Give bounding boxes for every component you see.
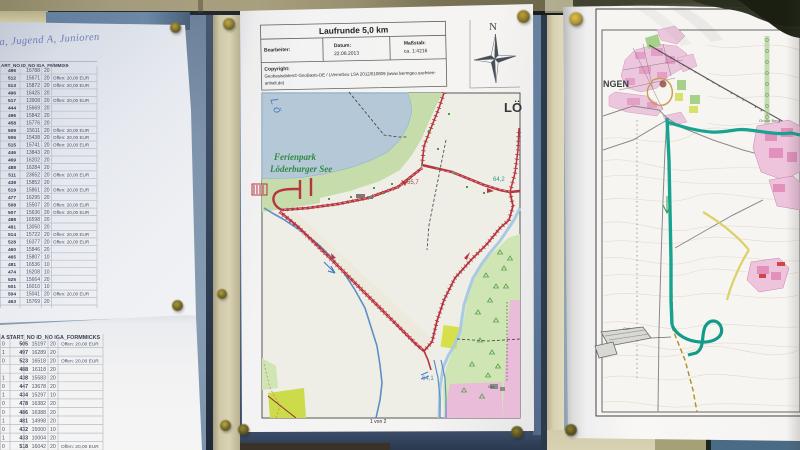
- svg-text:15664: 15664: [26, 277, 40, 283]
- svg-text:20: 20: [44, 68, 50, 74]
- svg-text:Offen: 20,00 EUR: Offen: 20,00 EUR: [61, 341, 99, 347]
- svg-text:528: 528: [8, 240, 16, 246]
- svg-text:Gut: Gut: [623, 326, 630, 331]
- svg-text:496: 496: [8, 113, 16, 119]
- svg-text:16202: 16202: [26, 158, 40, 164]
- svg-text:Offen: 20,00 EUR: Offen: 20,00 EUR: [53, 232, 90, 237]
- svg-text:20: 20: [50, 376, 56, 382]
- svg-text:20: 20: [50, 410, 56, 416]
- svg-text:ca. 1:4216: ca. 1:4216: [404, 48, 428, 54]
- svg-text:20: 20: [50, 367, 56, 373]
- svg-text:512: 512: [8, 76, 16, 82]
- svg-text:438: 438: [8, 180, 16, 186]
- svg-text:20: 20: [50, 401, 56, 407]
- svg-text:13908: 13908: [26, 98, 40, 104]
- svg-text:481: 481: [8, 262, 16, 268]
- svg-text:16518: 16518: [32, 359, 47, 365]
- svg-text:20: 20: [50, 435, 56, 441]
- svg-text:465: 465: [8, 254, 16, 260]
- svg-text:507: 507: [8, 210, 16, 216]
- svg-text:10: 10: [44, 262, 50, 268]
- svg-text:20: 20: [50, 418, 56, 424]
- svg-text:501: 501: [8, 284, 16, 290]
- svg-text:15722: 15722: [26, 232, 40, 238]
- svg-text:15041: 15041: [26, 292, 40, 298]
- svg-text:0: 0: [2, 401, 5, 407]
- svg-text:Offen: 20,00 EUR: Offen: 20,00 EUR: [53, 76, 90, 81]
- svg-text:508: 508: [8, 202, 16, 208]
- svg-text:504: 504: [8, 292, 16, 298]
- svg-text:Offen: 20,00 EUR: Offen: 20,00 EUR: [61, 444, 99, 450]
- svg-text:15872: 15872: [26, 83, 40, 89]
- svg-text:15507: 15507: [26, 202, 40, 208]
- svg-text:509: 509: [8, 128, 16, 134]
- svg-text:Offen: 20,00 EUR: Offen: 20,00 EUR: [53, 128, 90, 133]
- svg-text:0: 0: [2, 384, 5, 390]
- svg-text:Datum:: Datum:: [334, 43, 352, 49]
- svg-text:0: 0: [2, 444, 5, 450]
- svg-text:A START_NO ID_NO IGA_FORMMICKS: A START_NO ID_NO IGA_FORMMICKS: [1, 335, 101, 341]
- svg-text:16536: 16536: [26, 262, 40, 268]
- svg-text:15846: 15846: [26, 247, 40, 253]
- svg-text:13843: 13843: [26, 150, 40, 156]
- svg-text:16382: 16382: [32, 401, 47, 407]
- svg-text:Bearbeiter:: Bearbeiter:: [264, 47, 291, 54]
- svg-text:13050: 13050: [26, 225, 40, 231]
- svg-text:20: 20: [44, 98, 50, 104]
- svg-text:481: 481: [8, 225, 16, 231]
- svg-text:15842: 15842: [26, 113, 40, 119]
- svg-text:Geobasisdaten© GeoBasis-DE / L: Geobasisdaten© GeoBasis-DE / LVermGeo LS…: [264, 70, 436, 79]
- svg-text:496: 496: [8, 91, 16, 97]
- svg-text:20: 20: [44, 232, 50, 238]
- svg-text:22.08.2013: 22.08.2013: [334, 51, 359, 58]
- svg-text:20: 20: [50, 359, 56, 365]
- svg-text:15769: 15769: [26, 299, 40, 305]
- svg-text:Offen: 20,00 EUR: Offen: 20,00 EUR: [53, 135, 90, 140]
- svg-text:64,1: 64,1: [422, 376, 434, 382]
- svg-text:514: 514: [8, 232, 16, 238]
- svg-text:Ferienpark: Ferienpark: [273, 152, 317, 162]
- svg-text:13678: 13678: [32, 384, 47, 390]
- svg-text:469: 469: [8, 158, 16, 164]
- svg-text:65,7: 65,7: [407, 180, 419, 186]
- svg-text:1: 1: [2, 435, 5, 441]
- svg-text:20: 20: [44, 217, 50, 223]
- svg-text:20: 20: [44, 225, 50, 231]
- svg-text:0: 0: [2, 410, 5, 416]
- svg-text:20: 20: [44, 187, 50, 193]
- svg-text:20: 20: [44, 120, 50, 126]
- svg-text:20: 20: [44, 143, 50, 149]
- svg-text:anhalt.de): anhalt.de): [265, 80, 285, 85]
- svg-text:519: 519: [8, 187, 16, 193]
- svg-text:444: 444: [8, 106, 16, 112]
- svg-text:Copyright:: Copyright:: [264, 66, 290, 73]
- svg-text:15671: 15671: [26, 76, 40, 82]
- svg-text:NGEN: NGEN: [603, 79, 629, 89]
- svg-text:15611: 15611: [26, 128, 40, 134]
- svg-text:513: 513: [8, 83, 16, 89]
- svg-text:10: 10: [50, 427, 56, 433]
- svg-text:446: 446: [8, 150, 16, 156]
- svg-text:10: 10: [50, 393, 56, 399]
- svg-text:10: 10: [44, 254, 50, 260]
- svg-text:20: 20: [44, 76, 50, 82]
- svg-text:474: 474: [8, 269, 16, 275]
- svg-text:20: 20: [50, 384, 56, 390]
- svg-text:20: 20: [44, 247, 50, 253]
- svg-text:ga, Jugend A, Junioren: ga, Jugend A, Junioren: [0, 32, 100, 49]
- svg-text:Offen: 20,00 EUR: Offen: 20,00 EUR: [61, 359, 99, 365]
- svg-text:LÖ: LÖ: [504, 100, 522, 115]
- svg-text:20: 20: [44, 150, 50, 156]
- svg-text:Offen: 20,00 EUR: Offen: 20,00 EUR: [53, 292, 90, 297]
- svg-text:Offen: 20,00 EUR: Offen: 20,00 EUR: [53, 83, 90, 88]
- svg-text:20: 20: [44, 91, 50, 97]
- svg-text:Offen: 20,00 EUR: Offen: 20,00 EUR: [53, 173, 90, 178]
- svg-text:458: 458: [8, 120, 16, 126]
- svg-text:15583: 15583: [32, 376, 47, 382]
- svg-text:Offen: 20,00 EUR: Offen: 20,00 EUR: [53, 143, 90, 148]
- svg-text:488: 488: [8, 217, 16, 223]
- svg-text:20: 20: [44, 195, 50, 201]
- svg-text:15297: 15297: [32, 393, 47, 399]
- svg-text:Grs: Grs: [488, 384, 494, 389]
- svg-text:0: 0: [2, 359, 5, 365]
- svg-text:1: 1: [2, 393, 5, 399]
- svg-text:525: 525: [8, 277, 16, 283]
- svg-text:511: 511: [8, 173, 16, 179]
- svg-text:20: 20: [44, 158, 50, 164]
- svg-text:1: 1: [2, 350, 5, 356]
- svg-text:20: 20: [44, 292, 50, 298]
- svg-text:20: 20: [50, 444, 56, 450]
- svg-text:20: 20: [44, 135, 50, 141]
- svg-text:16295: 16295: [26, 195, 40, 201]
- svg-text:20: 20: [44, 173, 50, 179]
- svg-text:20: 20: [50, 350, 56, 356]
- svg-text:460: 460: [8, 247, 16, 253]
- svg-text:515: 515: [8, 143, 16, 149]
- svg-text:16042: 16042: [32, 444, 47, 450]
- svg-text:20: 20: [44, 210, 50, 216]
- svg-text:477: 477: [8, 195, 16, 201]
- svg-text:15807: 15807: [26, 254, 40, 260]
- svg-text:Offen: 20,00 EUR: Offen: 20,00 EUR: [53, 187, 90, 192]
- svg-text:15197: 15197: [32, 341, 47, 347]
- svg-text:16289: 16289: [32, 350, 47, 356]
- svg-text:Offen: 20,00 EUR: Offen: 20,00 EUR: [53, 240, 90, 245]
- svg-text:517: 517: [8, 98, 16, 104]
- svg-text:16377: 16377: [26, 240, 40, 246]
- svg-text:10: 10: [44, 284, 50, 290]
- svg-text:16598: 16598: [26, 217, 40, 223]
- svg-text:Löderburger See: Löderburger See: [269, 164, 332, 174]
- svg-text:15438: 15438: [26, 135, 40, 141]
- svg-text:1: 1: [2, 376, 5, 382]
- svg-text:16010: 16010: [26, 284, 40, 290]
- svg-text:20: 20: [44, 165, 50, 171]
- svg-text:16284: 16284: [26, 165, 40, 171]
- svg-text:15776: 15776: [26, 120, 40, 126]
- svg-text:16425: 16425: [26, 91, 40, 97]
- svg-text:23652: 23652: [26, 173, 40, 179]
- svg-text:20: 20: [44, 106, 50, 112]
- svg-text:Offen: 20,00 EUR: Offen: 20,00 EUR: [53, 98, 90, 103]
- svg-text:14998: 14998: [32, 418, 47, 424]
- svg-text:15741: 15741: [26, 143, 40, 149]
- svg-text:20: 20: [44, 299, 50, 305]
- svg-text:20: 20: [44, 83, 50, 89]
- svg-text:64,2: 64,2: [493, 177, 505, 183]
- svg-text:Maßstab:: Maßstab:: [404, 40, 426, 46]
- svg-text:15669: 15669: [26, 106, 40, 112]
- svg-text:Laufrunde 5,0 km: Laufrunde 5,0 km: [319, 24, 389, 35]
- svg-text:20: 20: [50, 341, 56, 347]
- svg-text:20: 20: [44, 202, 50, 208]
- svg-text:15852: 15852: [26, 180, 40, 186]
- svg-text:496: 496: [8, 68, 16, 74]
- svg-text:Offen: 20,00 EUR: Offen: 20,00 EUR: [53, 210, 90, 215]
- svg-text:10004: 10004: [32, 435, 47, 441]
- svg-text:N: N: [489, 21, 497, 33]
- svg-text:10: 10: [44, 269, 50, 275]
- svg-text:15000: 15000: [32, 427, 47, 433]
- svg-text:15861: 15861: [26, 187, 40, 193]
- svg-text:16118: 16118: [32, 367, 46, 373]
- svg-text:488: 488: [8, 165, 16, 171]
- svg-text:463: 463: [8, 299, 16, 305]
- svg-text:15636: 15636: [26, 210, 40, 216]
- svg-text:20: 20: [44, 128, 50, 134]
- svg-text:1: 1: [2, 418, 5, 424]
- svg-text:16788: 16788: [26, 68, 40, 74]
- svg-text:0: 0: [2, 427, 5, 433]
- svg-text:16388: 16388: [32, 410, 47, 416]
- svg-text:20: 20: [44, 113, 50, 119]
- svg-text:506: 506: [8, 135, 16, 141]
- svg-text:Offen: 20,00 EUR: Offen: 20,00 EUR: [53, 202, 90, 207]
- svg-text:20: 20: [44, 180, 50, 186]
- svg-text:0: 0: [2, 341, 5, 347]
- svg-text:20: 20: [44, 240, 50, 246]
- svg-text:16208: 16208: [26, 269, 40, 275]
- svg-text:Große Berg: Große Berg: [759, 118, 780, 123]
- svg-text:20: 20: [44, 277, 50, 283]
